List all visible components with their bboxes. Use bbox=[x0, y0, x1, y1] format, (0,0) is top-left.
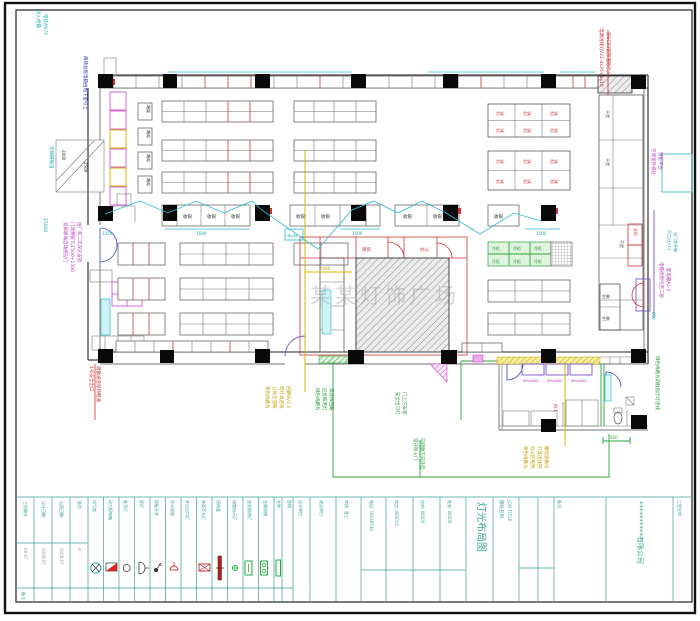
legend-item-label: 接线盒 bbox=[216, 500, 222, 512]
checkout-label: 收银 bbox=[403, 213, 412, 220]
svg-text:工程编号: 工程编号 bbox=[23, 501, 29, 517]
legend-header: 名称 bbox=[276, 500, 282, 508]
grid-cell-label: 货架 bbox=[496, 178, 504, 184]
counter-dim: 900x600 bbox=[547, 379, 562, 383]
annotation-text: 空调室外机位 bbox=[650, 148, 657, 175]
dim-500: 500 bbox=[610, 435, 618, 440]
floor-plan-drawing: 货架 货架 货架 货架 货架 货架 货架 货架 货架 货架 货架 货架 冷柜 冷… bbox=[0, 0, 700, 616]
legend-item-label: 跷板开关 bbox=[154, 500, 160, 516]
legend-item-label: 单管荧光灯 bbox=[201, 500, 207, 520]
annotation-text: 公共走道照 bbox=[271, 386, 278, 409]
legend-item-label: 防水插座 bbox=[170, 500, 176, 516]
job-title-en: JOB TITLE bbox=[506, 499, 512, 522]
title-field: 校对: 08305 bbox=[420, 500, 426, 524]
svg-text:端架: 端架 bbox=[146, 130, 152, 138]
svg-text:端架: 端架 bbox=[146, 105, 152, 113]
cooler-label: 冷柜 bbox=[534, 258, 542, 264]
legend-item-label: 安全出口灯 bbox=[185, 500, 191, 520]
grid-cell-label: 货架 bbox=[523, 127, 531, 133]
annotation-text: 具连线回路 bbox=[328, 388, 335, 411]
annotation-text: 由厂家二次深化安装 bbox=[76, 222, 83, 263]
distribution-box-icon bbox=[106, 563, 117, 571]
svg-text:版次: 版次 bbox=[77, 501, 83, 509]
annotation-text: 应急照明灯 bbox=[321, 388, 328, 411]
annotation-text: 办公区照明 bbox=[529, 446, 536, 469]
annotation-text: 电源进线YJV22-4x35+1x16 bbox=[598, 28, 605, 87]
annotation-text: 绿色线路为 bbox=[314, 388, 321, 411]
annotation-text: 门上方安装 bbox=[401, 392, 408, 415]
checkout-label: 收银 bbox=[231, 213, 240, 220]
svg-text:A: A bbox=[77, 548, 82, 551]
annotation-text: 预留平台 bbox=[657, 152, 664, 170]
dim-text: 1350 bbox=[102, 231, 113, 236]
annotation-text: 绿色线路为疏散指示灯连线 bbox=[654, 356, 661, 410]
checkout-label: 收银 bbox=[183, 213, 192, 220]
annotation-text: 明灯具连线 bbox=[278, 386, 285, 409]
dim-text: 1500 bbox=[536, 231, 547, 236]
grid-cell-label: 货架 bbox=[550, 127, 558, 133]
annotation-text: 黄色线路为 bbox=[522, 446, 529, 469]
office-label: 办公 bbox=[420, 246, 429, 253]
grid-cell-label: 货架 bbox=[496, 158, 504, 164]
legend-note: 备注 bbox=[21, 592, 27, 600]
cooler-label: 冷柜 bbox=[513, 258, 521, 264]
legend-item-label: 排气扇 bbox=[92, 500, 98, 512]
annotation-text: 回路BV2.5 bbox=[285, 386, 292, 408]
legend-item-label: 动力配电箱 bbox=[108, 500, 114, 520]
dim-text: 15000 bbox=[42, 218, 48, 232]
title-field: 批准: 08305 bbox=[447, 500, 453, 524]
legend-header: 图例 bbox=[287, 500, 293, 508]
grid-cell-label: 货架 bbox=[496, 127, 504, 133]
corridor-label: 干货 bbox=[605, 158, 611, 166]
counter-dim: 900x600 bbox=[571, 379, 586, 383]
corridor-label: 干货 bbox=[619, 240, 625, 248]
annotation-text: 暗装AN75 bbox=[42, 14, 49, 35]
title-field: 审定: 083015 bbox=[394, 500, 400, 526]
annotation-text: 电缆桥架引至二层 bbox=[658, 262, 665, 298]
dim-text: 1600 bbox=[196, 231, 207, 236]
annotation-text: 商场总配电箱由地下室引上 bbox=[82, 56, 89, 110]
checkout-label: 收银 bbox=[433, 213, 442, 220]
grid-cell-label: 货架 bbox=[550, 178, 558, 184]
checkout-label: 收银 bbox=[296, 213, 305, 220]
legend-item-label: 疏散指示灯 bbox=[232, 500, 238, 520]
dim-850: 850 bbox=[651, 312, 656, 320]
company-name: **********有限公司 bbox=[636, 501, 645, 564]
drawing-title: 灯光布局图 bbox=[475, 502, 488, 552]
grid-cell-label: 货架 bbox=[550, 158, 558, 164]
cooler-label: 冷柜 bbox=[492, 245, 500, 251]
annotation-text: 配电箱AL-2 bbox=[665, 268, 672, 292]
title-field: 审核: 潘工 bbox=[344, 500, 350, 519]
svg-text:端架: 端架 bbox=[146, 178, 152, 186]
cooler-label: 冷柜 bbox=[492, 258, 500, 264]
annotation-text: 含门禁系统 bbox=[673, 232, 679, 252]
legend-item-label: 应急照明灯 bbox=[247, 500, 253, 520]
svg-text:2008.07: 2008.07 bbox=[41, 548, 46, 565]
cooler-label: 冷柜 bbox=[513, 245, 521, 251]
dim-text: 2000 bbox=[61, 150, 66, 161]
freezer-label: 冰柜 bbox=[633, 228, 639, 236]
cooler-grid: 冷柜 冷柜 冷柜 冷柜 冷柜 冷柜 bbox=[488, 242, 572, 266]
gondolas-upper bbox=[162, 101, 376, 193]
svg-text:08-07: 08-07 bbox=[23, 548, 28, 560]
title-field: 设计单位: bbox=[298, 500, 304, 517]
annotation-text: AL1 bbox=[553, 404, 558, 412]
annotation-text: 穿SC50钢管埋地引入 bbox=[605, 32, 612, 76]
annotation-text: 门洞预留TL1500+1500 bbox=[69, 222, 76, 272]
project-label: 工程名称: bbox=[677, 500, 683, 517]
checkout-label: 收银 bbox=[321, 213, 330, 220]
junction-box-icon bbox=[232, 565, 237, 570]
notes-label: 备注: bbox=[557, 500, 563, 509]
sink-fixture bbox=[605, 375, 611, 401]
svg-text:出图日期: 出图日期 bbox=[59, 501, 65, 517]
corridor-label: 干货 bbox=[605, 110, 611, 118]
annotation-text: 无障碍坡道 bbox=[48, 146, 55, 169]
counter-dim: 900x600 bbox=[523, 379, 538, 383]
store-label: 库房 bbox=[362, 246, 371, 253]
annotation-text: 消火栓箱 bbox=[35, 10, 42, 28]
checkout-label: 收银 bbox=[207, 213, 216, 220]
dim-5000: 5000 bbox=[320, 266, 331, 271]
annotation-text: 路暗装敷设 bbox=[543, 446, 550, 469]
grid-cell-label: 货架 bbox=[523, 110, 531, 116]
title-field: 电话: 18148530 bbox=[369, 500, 375, 531]
svg-text:设计日期: 设计日期 bbox=[41, 501, 47, 517]
annotation-text: 疏散通道保持畅通 bbox=[95, 366, 102, 402]
svg-text:端架: 端架 bbox=[146, 154, 152, 162]
annotation-text: 安全出口灯 bbox=[394, 392, 401, 415]
fresh-label: 生鲜 bbox=[602, 293, 610, 299]
annotation-text: 1号安全出口 bbox=[88, 366, 95, 391]
annotation-text: 灯具连线回 bbox=[536, 446, 543, 469]
grid-cell-label: 货架 bbox=[496, 110, 504, 116]
legend-item-label: 壁灯 bbox=[139, 500, 145, 508]
annotation-text: 常开防火门 bbox=[412, 438, 419, 461]
annotation-text: 双扇玻璃自动感应门 bbox=[62, 222, 69, 263]
svg-text:2008.07: 2008.07 bbox=[59, 548, 64, 565]
cooler-label: 冷柜 bbox=[534, 245, 542, 251]
grid-cell-label: 货架 bbox=[550, 110, 558, 116]
watermark: 某某灯饰广场 bbox=[310, 284, 460, 308]
annotation-text: 黄色线路为 bbox=[264, 386, 271, 409]
dim-text: 2500 bbox=[83, 162, 88, 173]
grid-cell-label: 货架 bbox=[523, 178, 531, 184]
checkout-label: 收银 bbox=[494, 213, 503, 220]
annotation-text: 向疏散方向开启 bbox=[419, 438, 426, 470]
legend-item-label: 吸顶灯 bbox=[123, 500, 129, 512]
dim-text: 1500 bbox=[352, 231, 363, 236]
fresh-label: 生鲜 bbox=[602, 315, 610, 321]
title-field: 建设单位: bbox=[319, 500, 325, 517]
legend-item-label: 金属线槽 bbox=[263, 500, 269, 516]
job-title-label: 图纸名称: bbox=[498, 500, 505, 520]
grid-cell-label: 货架 bbox=[523, 158, 531, 164]
annotation-text: 员工出入口 bbox=[667, 230, 673, 250]
